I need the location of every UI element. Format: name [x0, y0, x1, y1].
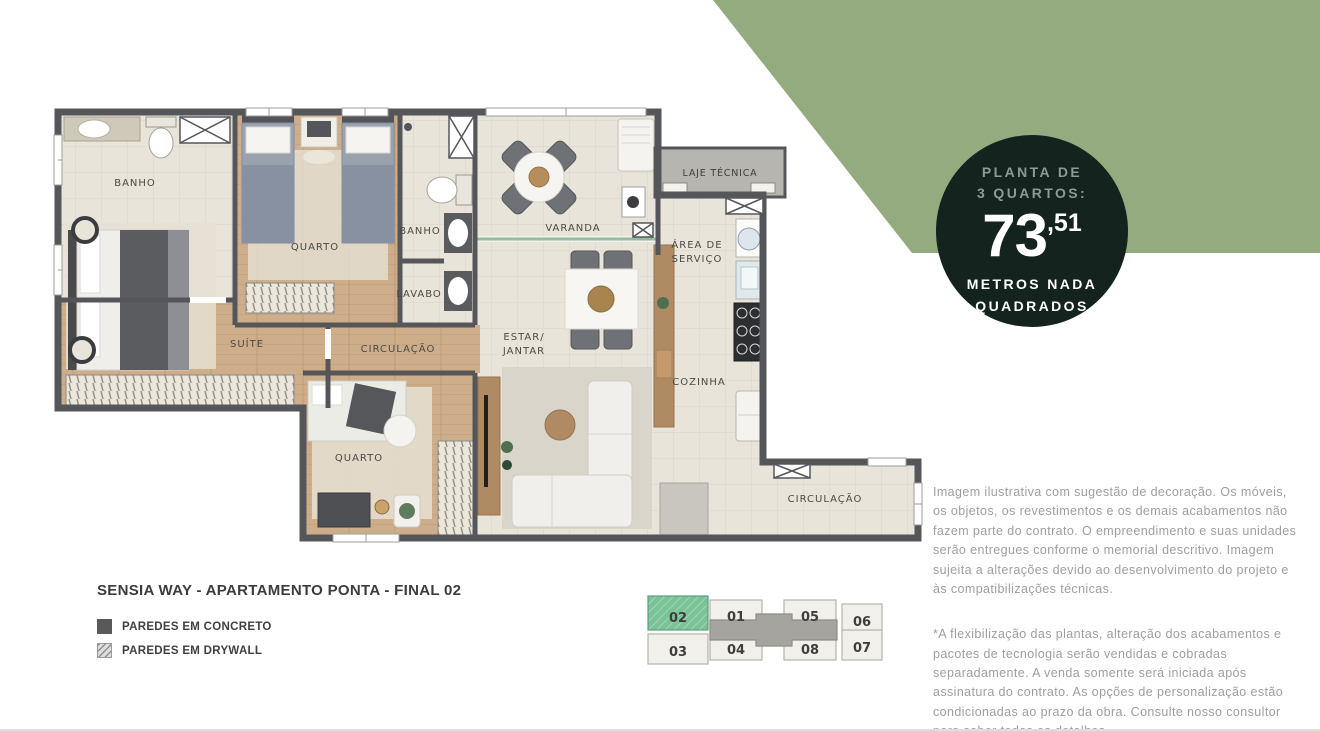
- room-label-banho-social: BANHO: [399, 226, 441, 237]
- disclaimer-paragraph-2: *A flexibilização das plantas, alteração…: [933, 625, 1301, 731]
- room-label-circulacao: CIRCULAÇÃO: [361, 342, 436, 355]
- coffee-table: [545, 410, 575, 440]
- room-label-laje: LAJE TÉCNICA: [683, 167, 758, 179]
- pillow: [346, 127, 390, 153]
- console-item: [307, 121, 331, 137]
- toilet-tank: [146, 117, 176, 127]
- disclaimer-paragraph-1: Imagem ilustrativa com sugestão de decor…: [933, 483, 1301, 599]
- drywall-swatch: [97, 643, 112, 658]
- plant: [502, 460, 512, 470]
- room-label-banho-suite: BANHO: [114, 178, 156, 189]
- plant: [657, 297, 669, 309]
- room-label-estar-2: JANTAR: [502, 346, 545, 357]
- keyplan-num-04: 04: [727, 643, 745, 658]
- shaft-box: [774, 464, 810, 478]
- wardrobe-rack: [66, 375, 294, 405]
- room-label-area-servico-2: SERVIÇO: [672, 254, 723, 265]
- badge-plan-line2: 3 QUARTOS:: [936, 183, 1128, 204]
- small-rug: [303, 150, 335, 164]
- sink: [448, 277, 468, 305]
- sink: [448, 219, 468, 247]
- fridge: [736, 391, 763, 441]
- shower-head: [404, 123, 412, 131]
- closet-rack: [246, 283, 334, 313]
- side-table: [384, 415, 416, 447]
- legend-item-drywall: PAREDES EM DRYWALL: [97, 643, 272, 658]
- lamp: [375, 500, 389, 514]
- plant: [501, 441, 513, 453]
- toilet-tank: [456, 175, 472, 205]
- room-label-lavabo: LAVABO: [396, 289, 442, 300]
- room-label-cozinha: COZINHA: [672, 377, 726, 388]
- keyplan-num-01: 01: [727, 610, 745, 625]
- shaft-box: [449, 116, 474, 158]
- legend: PAREDES EM CONCRETO PAREDES EM DRYWALL: [97, 619, 272, 667]
- lower-cabinet: [660, 483, 708, 535]
- room-label-circulacao-entrada: CIRCULAÇÃO: [788, 492, 863, 505]
- toilet: [427, 177, 457, 203]
- cutting-board: [657, 351, 671, 377]
- disclaimer: Imagem ilustrativa com sugestão de decor…: [933, 483, 1301, 731]
- keyplan-num-07: 07: [853, 641, 871, 656]
- keyplan-num-02: 02: [669, 611, 687, 626]
- sink: [78, 120, 110, 138]
- shaft-box: [180, 117, 230, 143]
- concrete-swatch: [97, 619, 112, 634]
- badge-area-number: 73: [982, 206, 1047, 266]
- keyplan-num-05: 05: [801, 610, 819, 625]
- keyplan-num-08: 08: [801, 643, 819, 658]
- blanket: [242, 165, 294, 243]
- badge-area-decimal: ,51: [1047, 211, 1082, 236]
- floor-plan: BANHO QUARTO SUÍTE CIRCULAÇÃO BANHO LAVA…: [50, 95, 930, 570]
- concrete-label: PAREDES EM CONCRETO: [122, 621, 272, 633]
- dresser: [318, 493, 370, 527]
- toilet: [149, 128, 173, 158]
- table-centerpiece: [529, 167, 549, 187]
- centerpiece: [588, 286, 614, 312]
- blanket: [342, 165, 394, 243]
- room-label-area-servico-1: ÁREA DE: [671, 238, 722, 251]
- room-label-quarto-1: QUARTO: [291, 242, 339, 253]
- badge-plan-line1: PLANTA DE: [936, 162, 1128, 183]
- area-badge: PLANTA DE 3 QUARTOS: 73 ,51 METROS NADA …: [936, 135, 1128, 327]
- key-plan: 02 01 05 06 03 04 08 07: [645, 590, 885, 672]
- shaft-box: [726, 198, 763, 214]
- shaft-box: [633, 223, 653, 237]
- heater-dial: [627, 196, 639, 208]
- kitchen-counter-wood: [654, 245, 674, 427]
- sink-basin: [741, 267, 758, 289]
- room-label-quarto-2: QUARTO: [335, 453, 383, 464]
- keyplan-num-03: 03: [669, 645, 687, 660]
- sofa-seat: [512, 475, 632, 527]
- closet-rack: [438, 441, 474, 535]
- room-label-estar-1: ESTAR/: [503, 332, 544, 343]
- drywall-label: PAREDES EM DRYWALL: [122, 645, 262, 657]
- brochure-page: PLANTA DE 3 QUARTOS: 73 ,51 METROS NADA …: [0, 0, 1320, 731]
- plant: [399, 503, 415, 519]
- pillow: [246, 127, 290, 153]
- tv-panel: [478, 377, 500, 515]
- tv: [484, 395, 488, 487]
- room-label-suite: SUÍTE: [230, 337, 264, 350]
- room-label-varanda: VARANDA: [545, 223, 600, 234]
- legend-item-concrete: PAREDES EM CONCRETO: [97, 619, 272, 634]
- keyplan-num-06: 06: [853, 615, 871, 630]
- badge-unit-line1: METROS NADA: [936, 274, 1128, 296]
- washer-drum: [738, 228, 760, 250]
- badge-unit-line2: QUADRADOS: [936, 296, 1128, 318]
- plan-title: SENSIA WAY - APARTAMENTO PONTA - FINAL 0…: [97, 582, 461, 599]
